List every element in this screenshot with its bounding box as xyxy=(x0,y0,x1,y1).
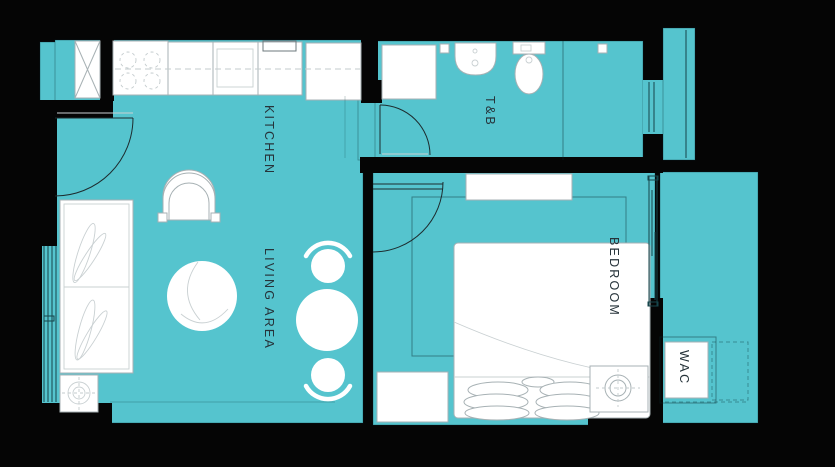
wall-segment xyxy=(36,100,113,118)
wall-segment xyxy=(363,80,382,103)
vent-box-icon xyxy=(598,44,607,53)
tb-window-strip xyxy=(643,80,663,134)
headboard-cabinet-icon xyxy=(466,174,572,200)
nightstand-icon xyxy=(377,372,448,422)
ac-ledge-floor xyxy=(663,28,695,160)
label-bedroom: BEDROOM xyxy=(607,237,621,317)
wall-segment xyxy=(38,118,57,246)
floor-drain-icon xyxy=(440,44,449,53)
label-toilet-bath: T&B xyxy=(483,96,497,127)
shower-icon xyxy=(382,45,436,99)
label-wac: WAC xyxy=(677,350,691,385)
floor-plan-drawing: KITCHEN T&B LIVING AREA BEDROOM WAC xyxy=(0,0,835,467)
toilet-icon xyxy=(513,42,545,94)
label-living-area: LIVING AREA xyxy=(262,248,276,350)
lavatory-sink-icon xyxy=(455,43,496,75)
wall-segment xyxy=(100,28,114,101)
floor-plan: KITCHEN T&B LIVING AREA BEDROOM WAC xyxy=(0,0,835,467)
shaft-xbox-icon xyxy=(75,41,100,98)
refrigerator-icon xyxy=(306,43,361,100)
sofa-icon xyxy=(60,200,133,373)
wall-segment xyxy=(588,416,663,460)
wall-bedroom-top xyxy=(360,157,663,173)
cooktop-icon xyxy=(113,41,168,95)
coffee-table-icon xyxy=(167,261,237,331)
label-kitchen: KITCHEN xyxy=(262,105,276,175)
side-table-icon xyxy=(60,375,98,412)
kitchen-fixtures xyxy=(75,41,361,100)
washing-machine-icon xyxy=(590,366,648,412)
